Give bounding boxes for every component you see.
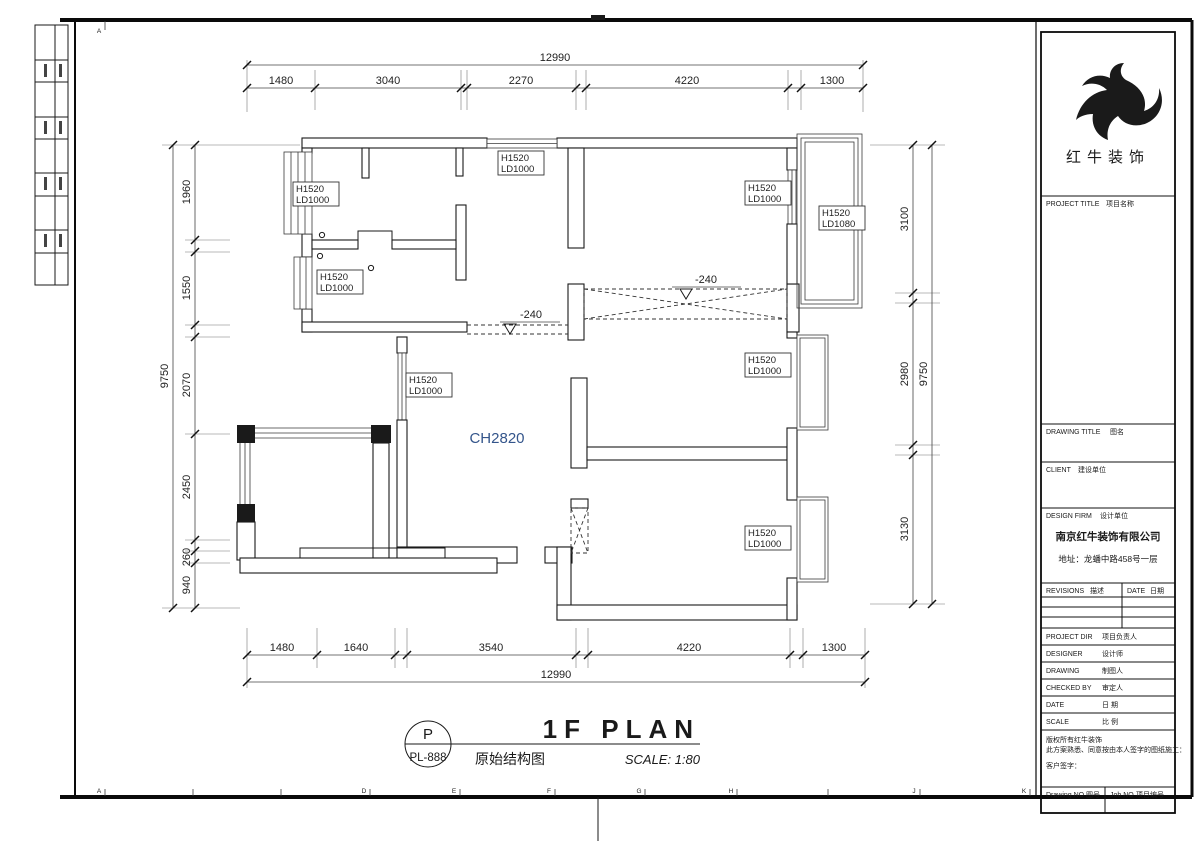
window-label: H1520 LD1000 <box>406 373 452 397</box>
grid-letter: K <box>1022 788 1027 795</box>
bay-window <box>797 335 828 430</box>
pipe <box>319 232 324 237</box>
field-label: Drawing NO <box>1046 792 1085 799</box>
bull-logo-icon <box>1076 63 1162 140</box>
field-label: SCALE <box>1046 719 1069 726</box>
grid-letter: D <box>362 788 367 795</box>
field-label: CLIENT <box>1046 467 1072 474</box>
svg-text:H1520: H1520 <box>748 528 776 539</box>
field-label: PROJECT TITLE <box>1046 201 1100 208</box>
dim-total-bottom: 12990 <box>541 669 572 681</box>
field-label: 审定人 <box>1102 683 1123 692</box>
field-label: DATE <box>1046 702 1064 709</box>
field-label: DRAWING TITLE <box>1046 429 1101 436</box>
field-label: REVISIONS <box>1046 588 1084 595</box>
dim-seg: 3040 <box>376 75 400 87</box>
grid-letter: H <box>729 788 734 795</box>
window-label: H1520 LD1000 <box>293 182 339 206</box>
dim-right: 3100 2980 3130 9750 <box>870 141 945 608</box>
svg-text:LD1000: LD1000 <box>296 195 329 206</box>
field-label: 日 期 <box>1102 701 1118 709</box>
grid-letter: F <box>547 788 551 795</box>
window-label: H1520 LD1080 <box>819 206 865 230</box>
bay-window <box>797 497 828 582</box>
field-label: 项目编号 <box>1136 790 1164 799</box>
drawing-sheet: A D E F G H J K A 12990 <box>0 0 1200 841</box>
svg-text:LD1000: LD1000 <box>748 366 781 377</box>
grid-letter-top: A <box>97 28 102 35</box>
field-label: Job NO <box>1110 792 1134 799</box>
agreement-note: 此方案熟悉、同意按由本人签字的图纸施工： <box>1046 745 1186 754</box>
dim-top: 12990 1480 3040 2270 4220 1300 <box>243 52 867 112</box>
level-marker-left: -240 <box>500 309 560 334</box>
signoff-strip <box>35 25 68 285</box>
copyright-note: 版权所有红牛装饰 <box>1046 735 1102 744</box>
grid-letter: G <box>636 788 641 795</box>
pipe <box>368 265 373 270</box>
dim-seg: 4220 <box>675 75 699 87</box>
svg-text:H1520: H1520 <box>501 153 529 164</box>
dim-seg: 4220 <box>677 642 701 654</box>
sheet-code-letter: P <box>423 726 433 743</box>
dim-seg: 1480 <box>270 642 294 654</box>
logo-text: 红牛装饰 <box>1066 149 1150 166</box>
window-label: H1520 LD1000 <box>317 270 363 294</box>
dim-seg: 1300 <box>820 75 844 87</box>
pipe <box>317 253 322 258</box>
dim-seg: 2070 <box>181 373 193 397</box>
dim-seg: 3130 <box>899 517 911 541</box>
dim-total-left: 9750 <box>159 364 171 388</box>
ceiling-height-label: CH2820 <box>469 430 524 447</box>
plan-title-en: 1F PLAN <box>543 714 700 744</box>
dim-seg: 1960 <box>181 180 193 204</box>
svg-text:H1520: H1520 <box>296 184 324 195</box>
grid-letter: J <box>912 788 915 795</box>
field-label: CHECKED BY <box>1046 685 1092 692</box>
sheet-code: PL-888 <box>409 752 446 764</box>
field-label: 建设单位 <box>1078 465 1106 474</box>
window-label: H1520 LD1000 <box>498 151 544 175</box>
window <box>487 139 557 148</box>
svg-text:LD1000: LD1000 <box>409 386 442 397</box>
dim-left: 1960 1550 2070 2450 260 940 9750 <box>159 141 300 612</box>
dim-seg: 1480 <box>269 75 293 87</box>
dim-seg: 1300 <box>822 642 846 654</box>
field-label: 项目名称 <box>1106 199 1134 208</box>
client-sign-note: 客户签字： <box>1046 761 1081 770</box>
title-block: 红牛装饰 PROJECT TITLE 项目名称 DRAWING TITLE 图名… <box>1041 32 1186 813</box>
dim-seg: 3100 <box>899 207 911 231</box>
dim-seg: 2980 <box>899 362 911 386</box>
field-label: 制图人 <box>1102 666 1123 675</box>
svg-text:H1520: H1520 <box>320 272 348 283</box>
firm-address: 地址：龙蟠中路458号一层 <box>1058 554 1157 564</box>
drawing-title-bar: P PL-888 1F PLAN 原始结构图 SCALE: 1:80 <box>405 714 701 767</box>
svg-text:H1520: H1520 <box>748 183 776 194</box>
field-label: DRAWING <box>1046 668 1080 675</box>
field-label: PROJECT DIR <box>1046 634 1093 641</box>
firm-name: 南京红牛装饰有限公司 <box>1056 530 1161 543</box>
field-label: 日期 <box>1150 587 1164 595</box>
beam-dashed <box>584 289 787 319</box>
svg-text:LD1000: LD1000 <box>501 164 534 175</box>
dim-seg: 1640 <box>344 642 368 654</box>
dim-seg: 260 <box>181 548 193 566</box>
field-label: 描述 <box>1090 586 1104 595</box>
flue <box>571 499 588 553</box>
floor-plan-sheet: A D E F G H J K A 12990 <box>0 0 1200 841</box>
plan-title-cn: 原始结构图 <box>475 751 545 767</box>
field-label: 项目负责人 <box>1102 632 1137 641</box>
svg-text:H1520: H1520 <box>409 375 437 386</box>
dim-seg: 2450 <box>181 475 193 499</box>
dim-seg: 1550 <box>181 276 193 300</box>
dim-total-right: 9750 <box>918 362 930 386</box>
window-label: H1520 LD1000 <box>745 353 791 377</box>
company-logo: 红牛装饰 <box>1066 63 1162 166</box>
window-label: H1520 LD1000 <box>745 526 791 550</box>
svg-text:LD1000: LD1000 <box>748 194 781 205</box>
level-value: -240 <box>520 309 542 321</box>
window <box>294 257 312 309</box>
svg-text:H1520: H1520 <box>822 208 850 219</box>
dim-seg: 940 <box>181 576 193 594</box>
level-value: -240 <box>695 274 717 286</box>
field-label: 设计单位 <box>1100 511 1128 520</box>
field-label: DESIGNER <box>1046 651 1083 658</box>
svg-text:H1520: H1520 <box>748 355 776 366</box>
dim-total-top: 12990 <box>540 52 571 64</box>
grid-letter: A <box>97 788 102 795</box>
dim-seg: 2270 <box>509 75 533 87</box>
svg-text:LD1000: LD1000 <box>748 539 781 550</box>
field-label: 图名 <box>1110 427 1124 436</box>
field-label: 图号 <box>1086 791 1100 799</box>
grid-letter: E <box>452 788 457 795</box>
dim-bottom: 1480 1640 3540 4220 1300 12990 <box>243 628 869 688</box>
fold-mark-top <box>591 15 605 20</box>
plan-scale: SCALE: 1:80 <box>625 752 701 767</box>
window-label: H1520 LD1000 <box>745 181 791 205</box>
svg-text:LD1080: LD1080 <box>822 219 855 230</box>
field-label: DATE <box>1127 588 1145 595</box>
window <box>398 353 406 420</box>
field-label: DESIGN FIRM <box>1046 513 1092 520</box>
field-label: 比 例 <box>1102 717 1118 726</box>
dim-seg: 3540 <box>479 642 503 654</box>
field-label: 设计师 <box>1102 649 1123 658</box>
level-marker-right: -240 <box>672 274 741 299</box>
svg-text:LD1000: LD1000 <box>320 283 353 294</box>
